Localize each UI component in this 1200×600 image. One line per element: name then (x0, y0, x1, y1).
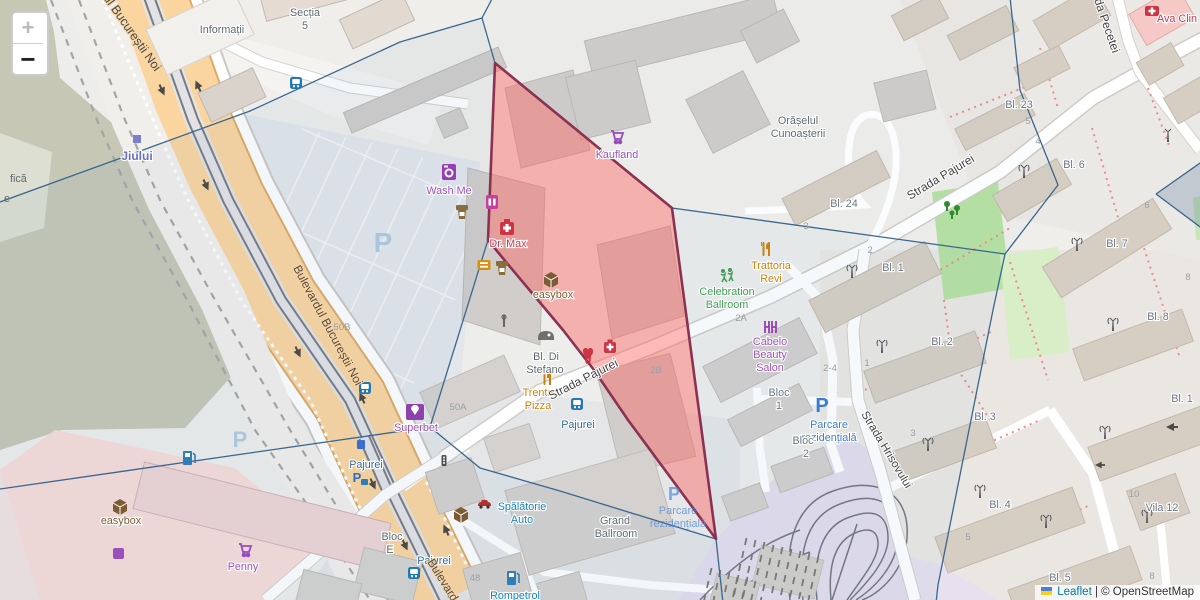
svg-text:Bl. 5: Bl. 5 (1049, 572, 1071, 584)
svg-text:Vila 12: Vila 12 (1146, 502, 1179, 514)
svg-text:Revi: Revi (760, 273, 782, 285)
svg-text:fică: fică (10, 173, 27, 185)
svg-text:Bl. 3: Bl. 3 (974, 411, 996, 423)
svg-text:Bl. 7: Bl. 7 (1106, 238, 1128, 250)
svg-text:Bloc: Bloc (381, 531, 403, 543)
svg-text:Bl. 1: Bl. 1 (1171, 393, 1193, 405)
svg-text:2: 2 (803, 448, 809, 460)
svg-text:Bl. 4: Bl. 4 (989, 499, 1011, 511)
svg-text:Bloc: Bloc (768, 387, 790, 399)
svg-text:Orășelul: Orășelul (778, 115, 818, 127)
svg-text:Grand: Grand (600, 515, 630, 527)
svg-text:Secția: Secția (290, 7, 320, 19)
svg-text:P: P (374, 227, 393, 258)
svg-text:Spălătorie: Spălătorie (498, 501, 547, 513)
svg-text:8: 8 (1185, 272, 1190, 283)
svg-text:Bl. Di: Bl. Di (533, 351, 559, 363)
svg-text:Pizza: Pizza (525, 400, 551, 412)
svg-text:Jiului: Jiului (121, 149, 152, 163)
svg-text:P: P (233, 427, 248, 452)
svg-text:Parcare: Parcare (659, 505, 698, 517)
svg-text:50A: 50A (450, 402, 468, 413)
svg-text:Pajurei: Pajurei (561, 419, 595, 431)
svg-text:6: 6 (1144, 200, 1149, 211)
svg-text:Dr. Max: Dr. Max (489, 238, 527, 250)
svg-text:e: e (4, 193, 10, 205)
svg-text:E: E (386, 544, 393, 556)
svg-text:Bl. 8: Bl. 8 (1147, 311, 1169, 323)
svg-text:Stefano: Stefano (526, 364, 563, 376)
svg-text:Bl. 6: Bl. 6 (1063, 159, 1085, 171)
svg-text:Wash Me: Wash Me (426, 185, 471, 197)
svg-text:Cunoașterii: Cunoașterii (771, 128, 826, 140)
svg-text:Kaufland: Kaufland (596, 149, 639, 161)
svg-text:Ballroom: Ballroom (706, 299, 749, 311)
svg-text:50B: 50B (334, 322, 351, 333)
svg-text:Ballroom: Ballroom (595, 528, 638, 540)
svg-text:Bl. 2: Bl. 2 (931, 336, 953, 348)
svg-text:5: 5 (302, 20, 308, 32)
svg-text:easybox: easybox (533, 289, 574, 301)
svg-text:5: 5 (965, 532, 970, 543)
svg-text:1: 1 (864, 358, 869, 369)
svg-text:Bl. 24: Bl. 24 (830, 198, 858, 210)
svg-text:Bl. 23: Bl. 23 (1005, 99, 1033, 111)
svg-text:P: P (668, 484, 680, 504)
svg-text:3: 3 (803, 221, 808, 232)
svg-text:Auto: Auto (511, 514, 533, 526)
svg-text:Informații: Informații (200, 24, 244, 36)
svg-text:Celebration: Celebration (699, 286, 754, 298)
svg-text:P: P (353, 470, 362, 485)
svg-text:Trattoria: Trattoria (751, 260, 791, 272)
svg-text:3: 3 (910, 428, 915, 439)
svg-text:48: 48 (470, 573, 481, 584)
svg-text:Ava Clin: Ava Clin (1157, 13, 1197, 25)
svg-text:Penny: Penny (228, 561, 259, 573)
svg-text:2-4: 2-4 (823, 363, 837, 374)
svg-text:Bl. 1: Bl. 1 (882, 262, 904, 274)
svg-text:2A: 2A (735, 313, 747, 324)
svg-text:Rompetrol: Rompetrol (490, 590, 540, 600)
svg-text:2B: 2B (650, 365, 662, 376)
svg-text:easybox: easybox (101, 515, 142, 527)
svg-text:4: 4 (1035, 136, 1040, 147)
svg-text:Parcare: Parcare (810, 419, 848, 431)
svg-text:1: 1 (776, 400, 782, 412)
svg-text:Beauty: Beauty (753, 349, 787, 361)
svg-text:Bloc: Bloc (792, 435, 814, 447)
svg-text:Superbet: Superbet (394, 422, 438, 434)
svg-text:10: 10 (1129, 489, 1140, 500)
svg-text:2: 2 (867, 245, 872, 256)
svg-text:Cabelo: Cabelo (753, 336, 787, 348)
svg-text:rezidențială: rezidențială (650, 518, 707, 530)
svg-text:Salon: Salon (756, 362, 784, 374)
svg-text:5: 5 (1025, 116, 1030, 127)
svg-text:P: P (815, 395, 828, 417)
svg-text:8: 8 (1149, 571, 1154, 582)
